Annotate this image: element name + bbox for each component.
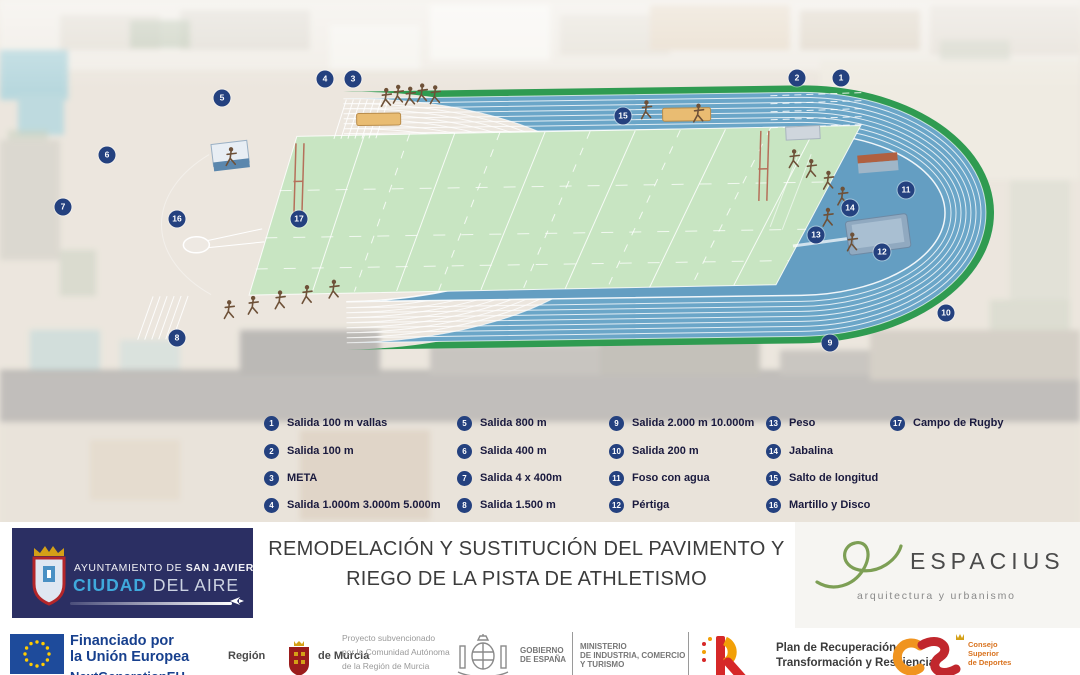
- legend-label: Salida 1.000m 3.000m 5.000m: [287, 499, 441, 512]
- spain-coat-of-arms-icon: [452, 632, 514, 675]
- track-marker-13: 13: [808, 227, 825, 244]
- gobierno-line1: GOBIERNO: [520, 646, 566, 655]
- ministerio-line2: DE INDUSTRIA, COMERCIO: [580, 651, 685, 660]
- legend-item-16: 16Martillo y Disco: [766, 498, 870, 513]
- legend-item-17: 17Campo de Rugby: [890, 416, 1003, 431]
- legend-dot: 17: [890, 416, 905, 431]
- swoosh-line: [70, 602, 232, 605]
- track-marker-7: 7: [55, 199, 72, 216]
- throwing-circle: [183, 229, 264, 253]
- track-marker-15: 15: [615, 108, 632, 125]
- track-marker-1: 1: [833, 70, 850, 87]
- legend-item-15: 15Salto de longitud: [766, 471, 878, 486]
- legend-label: Martillo y Disco: [789, 499, 870, 512]
- csd-line2: Superior: [968, 649, 1011, 658]
- legend-item-8: 8Salida 1.500 m: [457, 498, 556, 513]
- legend-item-14: 14Jabalina: [766, 444, 833, 459]
- espacius-name: ESPACIUS: [910, 548, 1065, 575]
- legend-dot: 10: [609, 444, 624, 459]
- ciudad-del-aire-line: CIUDAD DEL AIRE: [73, 575, 239, 596]
- project-title-line1: REMODELACIÓN Y SUSTITUCIÓN DEL PAVIMENTO…: [258, 534, 795, 564]
- legend-label: Campo de Rugby: [913, 417, 1003, 430]
- espacius-tagline: arquitectura y urbanismo: [857, 590, 1016, 602]
- project-title: REMODELACIÓN Y SUSTITUCIÓN DEL PAVIMENTO…: [258, 534, 795, 594]
- divider: [688, 632, 689, 675]
- legend-dot: 2: [264, 444, 279, 459]
- track-marker-8: 8: [169, 330, 186, 347]
- legend-dot: 6: [457, 444, 472, 459]
- legend-label: Jabalina: [789, 445, 833, 458]
- ministerio-text: MINISTERIO DE INDUSTRIA, COMERCIO Y TURI…: [580, 642, 685, 669]
- poster-canvas: 1 2 3 4 5 6 7 8 9 10 11 12 13 14 15 16 1…: [0, 0, 1080, 675]
- espacius-logo: ESPACIUS arquitectura y urbanismo: [795, 522, 1080, 634]
- track-marker-12: 12: [874, 244, 891, 261]
- legend-label: Salida 100 m: [287, 445, 354, 458]
- gobierno-line2: DE ESPAÑA: [520, 655, 566, 664]
- legend-label: META: [287, 472, 317, 485]
- ministerio-line3: Y TURISMO: [580, 660, 685, 669]
- legend-label: Salida 1.500 m: [480, 499, 556, 512]
- legend-item-5: 5Salida 800 m: [457, 416, 547, 431]
- track-marker-17: 17: [291, 211, 308, 228]
- legend-dot: 14: [766, 444, 781, 459]
- ministerio-line1: MINISTERIO: [580, 642, 685, 651]
- legend-item-11: 11Foso con agua: [609, 471, 710, 486]
- rugby-field: [247, 126, 863, 296]
- track-marker-11: 11: [898, 182, 915, 199]
- track-marker-3: 3: [345, 71, 362, 88]
- csd-line3: de Deportes: [968, 658, 1011, 667]
- murcia-subsidy-line3: de la Región de Murcia: [342, 661, 429, 671]
- legend-item-1: 1Salida 100 m vallas: [264, 416, 387, 431]
- espacius-swirl-icon: [809, 536, 909, 596]
- legend-item-12: 12Pértiga: [609, 498, 669, 513]
- track-marker-9: 9: [822, 335, 839, 352]
- eu-line1: Financiado por: [70, 633, 189, 649]
- legend-dot: 12: [609, 498, 624, 513]
- funding-strip: Financiado por la Unión Europea NextGene…: [0, 628, 1080, 675]
- legend-label: Salida 2.000 m 10.000m: [632, 417, 754, 430]
- legend-label: Salto de longitud: [789, 472, 878, 485]
- murcia-subsidy-line1: Proyecto subvencionado: [342, 633, 435, 643]
- prtr-logo-icon: [696, 632, 771, 675]
- legend-item-13: 13Peso: [766, 416, 815, 431]
- gobierno-espana-text: GOBIERNO DE ESPAÑA: [520, 646, 566, 664]
- legend-dot: 15: [766, 471, 781, 486]
- csd-text: Consejo Superior de Deportes: [968, 640, 1011, 667]
- project-title-line2: RIEGO DE LA PISTA DE ATHLETISMO: [258, 564, 795, 594]
- murcia-subsidy-line2: por la Comunidad Autónoma: [342, 647, 450, 657]
- legend-dot: 1: [264, 416, 279, 431]
- track-marker-10: 10: [938, 305, 955, 322]
- legend-label: Salida 400 m: [480, 445, 547, 458]
- water-jump: [857, 152, 898, 173]
- equipment-mat: [786, 125, 821, 140]
- csd-logo-icon: [890, 632, 968, 675]
- eu-line2: la Unión Europea: [70, 649, 189, 665]
- eu-funding-text: Financiado por la Unión Europea NextGene…: [70, 633, 189, 675]
- csd-line1: Consejo: [968, 640, 1011, 649]
- legend-label: Pértiga: [632, 499, 669, 512]
- region-text: Región: [228, 650, 265, 662]
- legend-dot: 4: [264, 498, 279, 513]
- eu-flag-icon: [10, 634, 64, 674]
- legend-dot: 11: [609, 471, 624, 486]
- legend-item-7: 7Salida 4 x 400m: [457, 471, 562, 486]
- track-marker-5: 5: [214, 90, 231, 107]
- san-javier-crest-icon: [30, 544, 68, 606]
- legend-label: Salida 800 m: [480, 417, 547, 430]
- track-marker-6: 6: [99, 147, 116, 164]
- airplane-icon: [230, 594, 246, 608]
- legend-item-9: 9Salida 2.000 m 10.000m: [609, 416, 754, 431]
- track-marker-14: 14: [842, 200, 859, 217]
- legend-label: Salida 200 m: [632, 445, 699, 458]
- divider: [572, 632, 573, 675]
- legend-dot: 5: [457, 416, 472, 431]
- track-marker-2: 2: [789, 70, 806, 87]
- legend-item-10: 10Salida 200 m: [609, 444, 699, 459]
- legend-item-3: 3META: [264, 471, 317, 486]
- legend-item-2: 2Salida 100 m: [264, 444, 354, 459]
- track-marker-4: 4: [317, 71, 334, 88]
- legend-label: Salida 100 m vallas: [287, 417, 387, 430]
- legend-dot: 13: [766, 416, 781, 431]
- murcia-shield-icon: [286, 640, 312, 675]
- legend-label: Peso: [789, 417, 815, 430]
- legend-dot: 16: [766, 498, 781, 513]
- legend-item-6: 6Salida 400 m: [457, 444, 547, 459]
- legend-dot: 3: [264, 471, 279, 486]
- legend-label: Foso con agua: [632, 472, 710, 485]
- legend-dot: 9: [609, 416, 624, 431]
- track-marker-16: 16: [169, 211, 186, 228]
- legend-label: Salida 4 x 400m: [480, 472, 562, 485]
- legend-dot: 7: [457, 471, 472, 486]
- legend-dot: 8: [457, 498, 472, 513]
- ayuntamiento-line: AYUNTAMIENTO DE SAN JAVIER: [74, 562, 254, 574]
- eu-line3: NextGenerationEU: [70, 669, 189, 675]
- legend-item-4: 4Salida 1.000m 3.000m 5.000m: [264, 498, 441, 513]
- san-javier-logo: AYUNTAMIENTO DE SAN JAVIER CIUDAD DEL AI…: [12, 528, 253, 618]
